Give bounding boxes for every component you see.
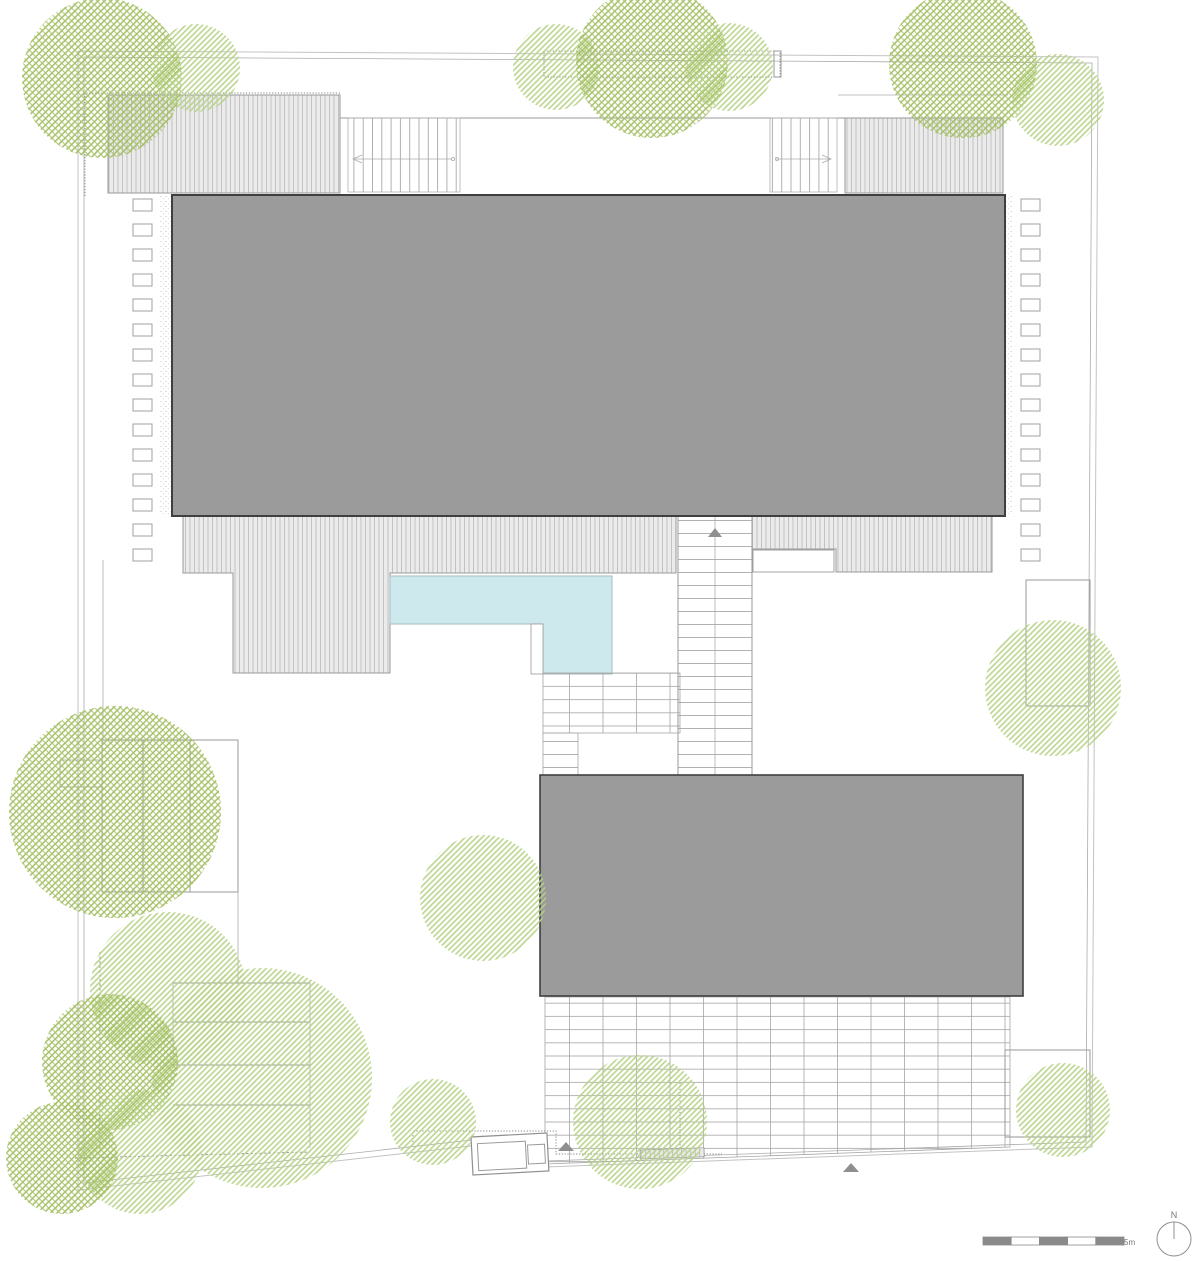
entrance-arrow <box>843 1163 859 1172</box>
entry-kiosk <box>471 1133 549 1175</box>
stepping-stone <box>133 499 152 511</box>
tree-canopy <box>1016 1063 1110 1157</box>
stepping-stone <box>1021 374 1040 386</box>
north-label: N <box>1171 1210 1178 1220</box>
stepping-stone <box>133 249 152 261</box>
pool-water <box>390 576 612 674</box>
scale-bar: 5m <box>983 1237 1135 1247</box>
stepping-stone <box>133 424 152 436</box>
stepping-stone <box>1021 249 1040 261</box>
lower-building-roof <box>540 775 1023 996</box>
stepping-stone <box>133 274 152 286</box>
central-stair <box>678 516 752 775</box>
stepping-stone <box>133 399 152 411</box>
stepping-stone <box>133 299 152 311</box>
tree-canopy <box>420 835 546 961</box>
stepping-stone <box>1021 424 1040 436</box>
stepping-stone <box>1021 199 1040 211</box>
scale-label: 5m <box>1124 1238 1135 1247</box>
tree-canopy <box>889 0 1037 138</box>
stepping-stone <box>133 199 152 211</box>
stepping-stone <box>133 349 152 361</box>
pool-wall <box>531 624 543 674</box>
stepping-stone <box>1021 399 1040 411</box>
stepping-stone <box>1021 449 1040 461</box>
stepping-stone <box>1021 499 1040 511</box>
swimming-pool <box>390 576 612 674</box>
stepping-stone <box>1021 349 1040 361</box>
stepping-stone <box>1021 299 1040 311</box>
tree-canopy <box>985 620 1121 756</box>
stepping-stone <box>1021 549 1040 561</box>
stepping-stone <box>133 549 152 561</box>
tree-canopy <box>152 24 240 112</box>
stepping-stone <box>1021 274 1040 286</box>
scale-segment <box>1011 1237 1039 1245</box>
site-plan-drawing: 5m N <box>0 0 1200 1261</box>
stepping-stone <box>133 324 152 336</box>
stepping-stone <box>133 474 152 486</box>
stepping-stone <box>1021 224 1040 236</box>
stepping-stone <box>1021 324 1040 336</box>
upper-stair-east <box>770 118 837 192</box>
stepping-stone <box>1021 474 1040 486</box>
stepping-stone <box>133 449 152 461</box>
tree-canopy <box>6 1102 118 1214</box>
scale-segment <box>1096 1237 1124 1245</box>
scale-segment <box>1068 1237 1096 1245</box>
garden-steps <box>543 673 680 775</box>
site-plan-page: 5m N <box>0 0 1200 1261</box>
stepping-stone <box>133 374 152 386</box>
tree-canopy <box>9 706 221 918</box>
skylight <box>753 550 834 572</box>
tree-canopy <box>1012 54 1104 146</box>
tree-canopy <box>573 1055 707 1189</box>
north-arrow: N <box>1157 1210 1191 1256</box>
scale-segment <box>983 1237 1011 1245</box>
stepping-stone <box>133 224 152 236</box>
stepping-stone <box>1021 524 1040 536</box>
tree-canopy <box>685 23 773 111</box>
scale-segment <box>1039 1237 1067 1245</box>
upper-stair-west <box>348 118 460 192</box>
main-building-roof <box>172 195 1005 516</box>
stepping-stone <box>133 524 152 536</box>
tree-canopy <box>390 1079 476 1165</box>
